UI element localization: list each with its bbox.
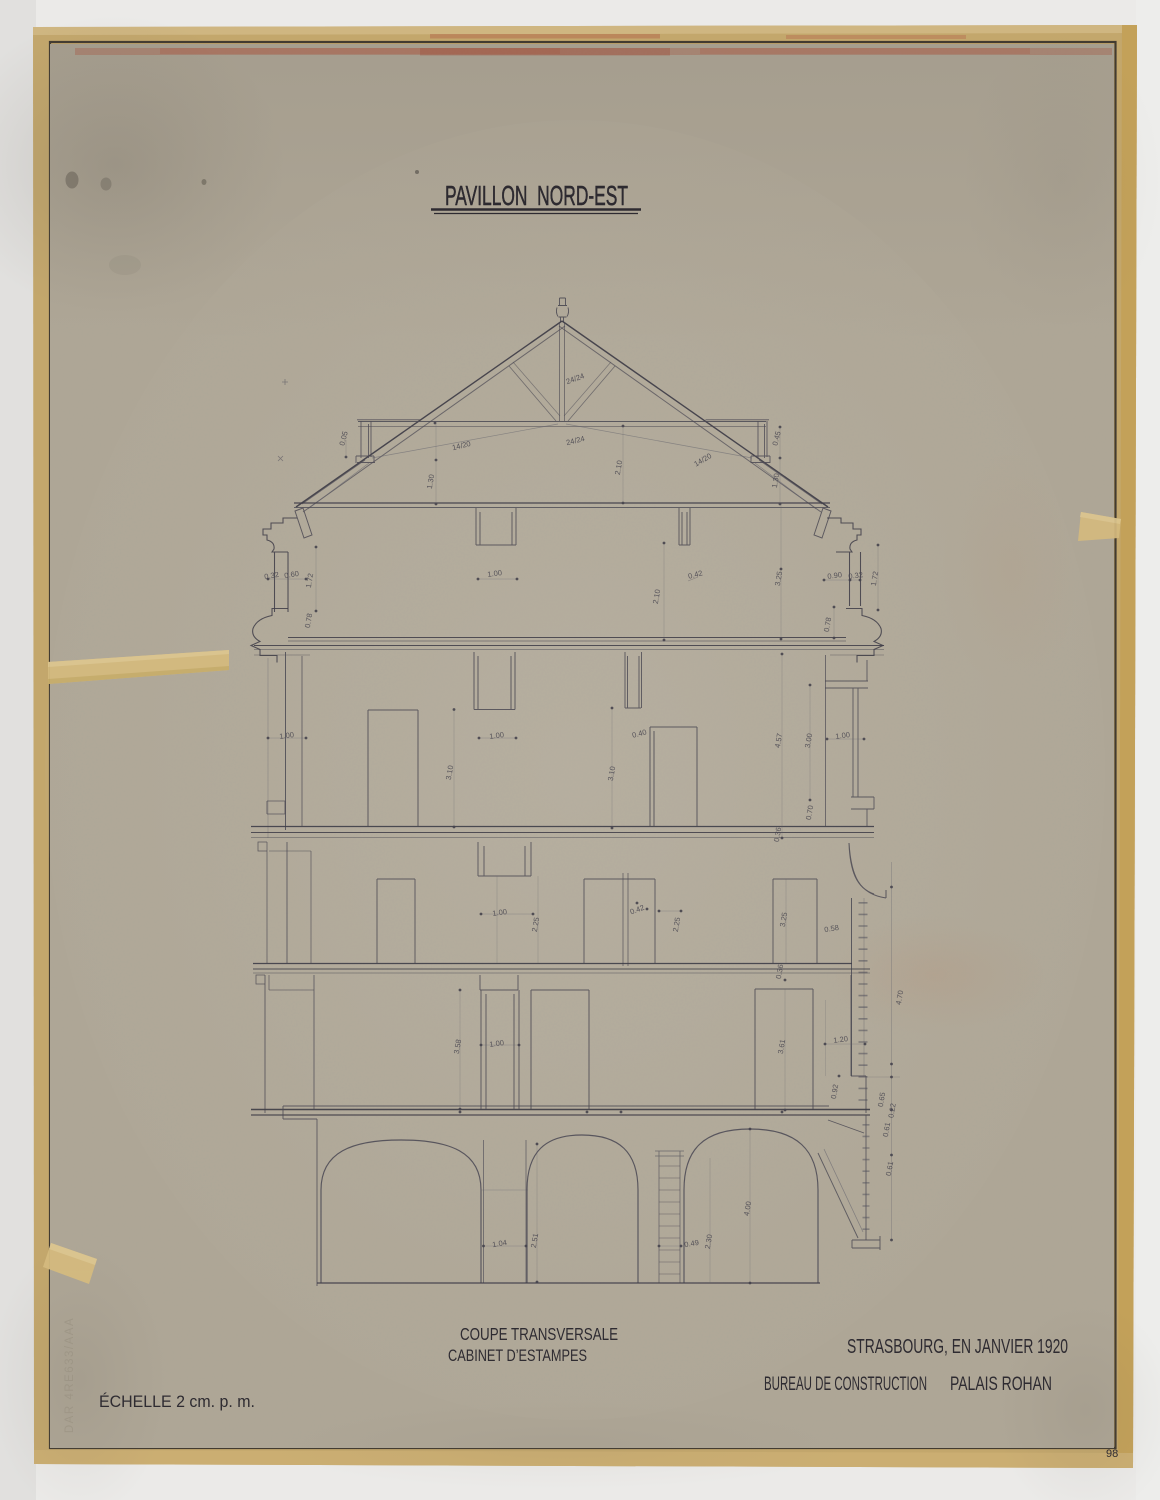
svg-text:BUREAU DE CONSTRUCTION: BUREAU DE CONSTRUCTION	[764, 1374, 927, 1395]
svg-text:ÉCHELLE 2 cm. p. m.: ÉCHELLE 2 cm. p. m.	[99, 1392, 255, 1411]
svg-text:PAVILLON NORD-EST: PAVILLON NORD-EST	[445, 180, 628, 211]
svg-text:PALAIS ROHAN: PALAIS ROHAN	[950, 1374, 1052, 1395]
svg-text:STRASBOURG, EN JANVIER 1920: STRASBOURG, EN JANVIER 1920	[847, 1336, 1068, 1358]
svg-text:CABINET D’ESTAMPES: CABINET D’ESTAMPES	[448, 1347, 587, 1365]
svg-text:98: 98	[1106, 1448, 1118, 1460]
svg-text:DAR 4RE633/AAA: DAR 4RE633/AAA	[64, 1317, 76, 1433]
svg-text:COUPE TRANSVERSALE: COUPE TRANSVERSALE	[460, 1324, 618, 1344]
